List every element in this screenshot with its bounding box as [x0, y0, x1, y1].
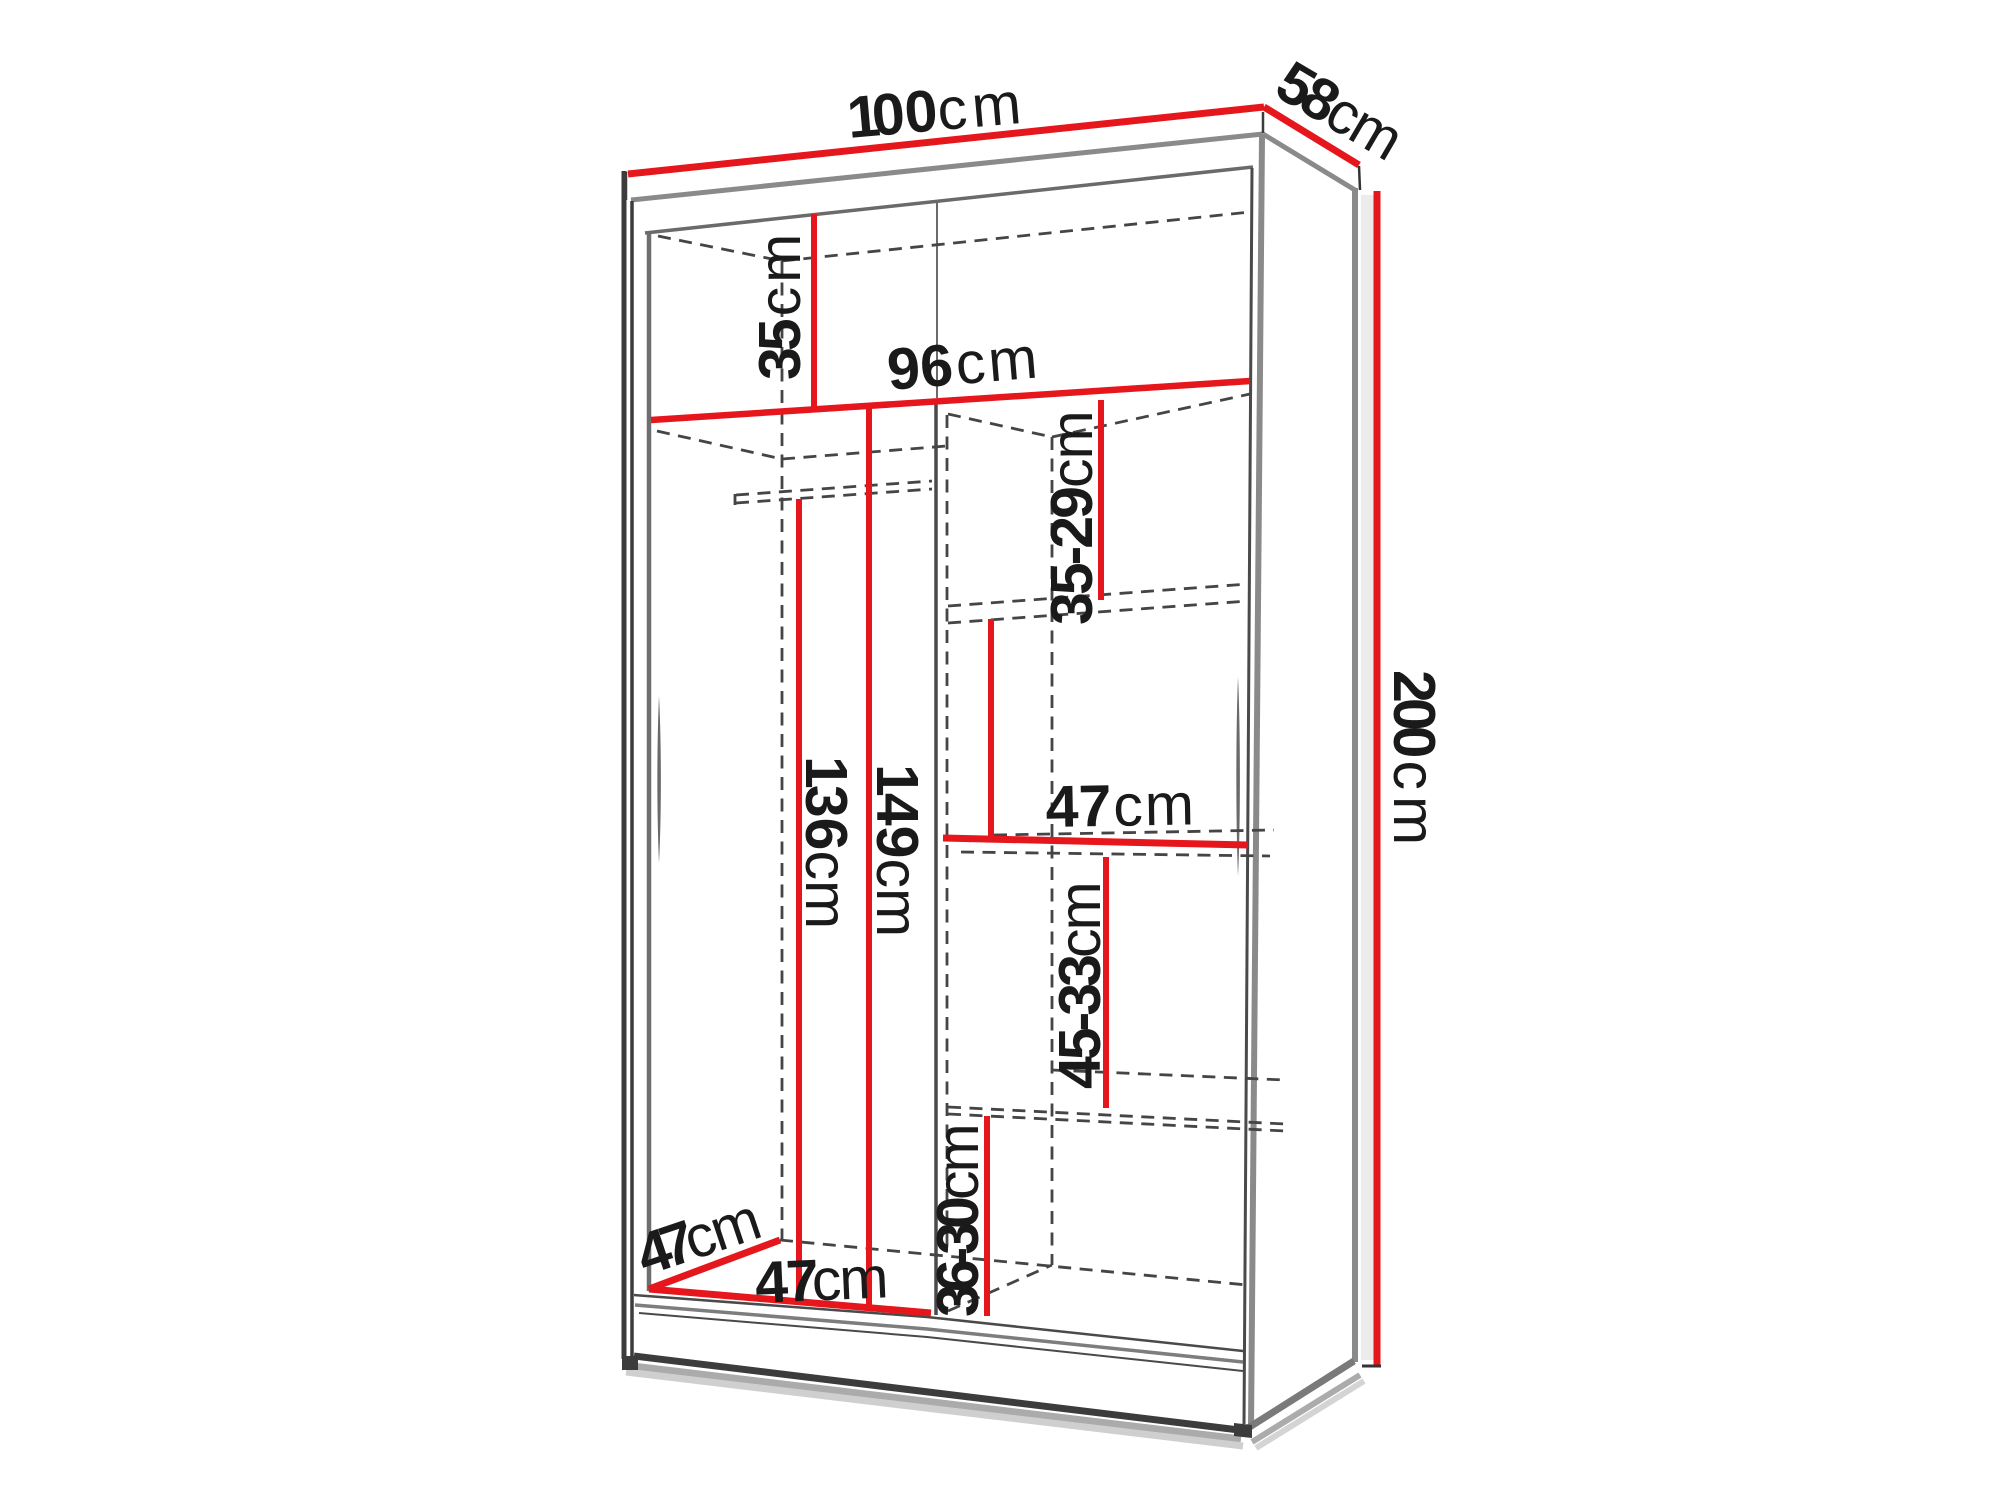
- svg-text:200cm: 200cm: [1381, 670, 1447, 845]
- svg-text:136cm: 136cm: [793, 756, 859, 929]
- svg-text:45-33cm: 45-33cm: [1047, 881, 1113, 1089]
- svg-text:47cm: 47cm: [754, 1244, 890, 1316]
- svg-text:96cm: 96cm: [885, 325, 1040, 403]
- svg-text:36-30cm: 36-30cm: [925, 1123, 991, 1317]
- svg-text:35cm: 35cm: [747, 234, 813, 380]
- svg-text:35-29cm: 35-29cm: [1039, 410, 1105, 625]
- svg-text:149cm: 149cm: [864, 764, 930, 937]
- svg-text:47cm: 47cm: [1045, 771, 1194, 840]
